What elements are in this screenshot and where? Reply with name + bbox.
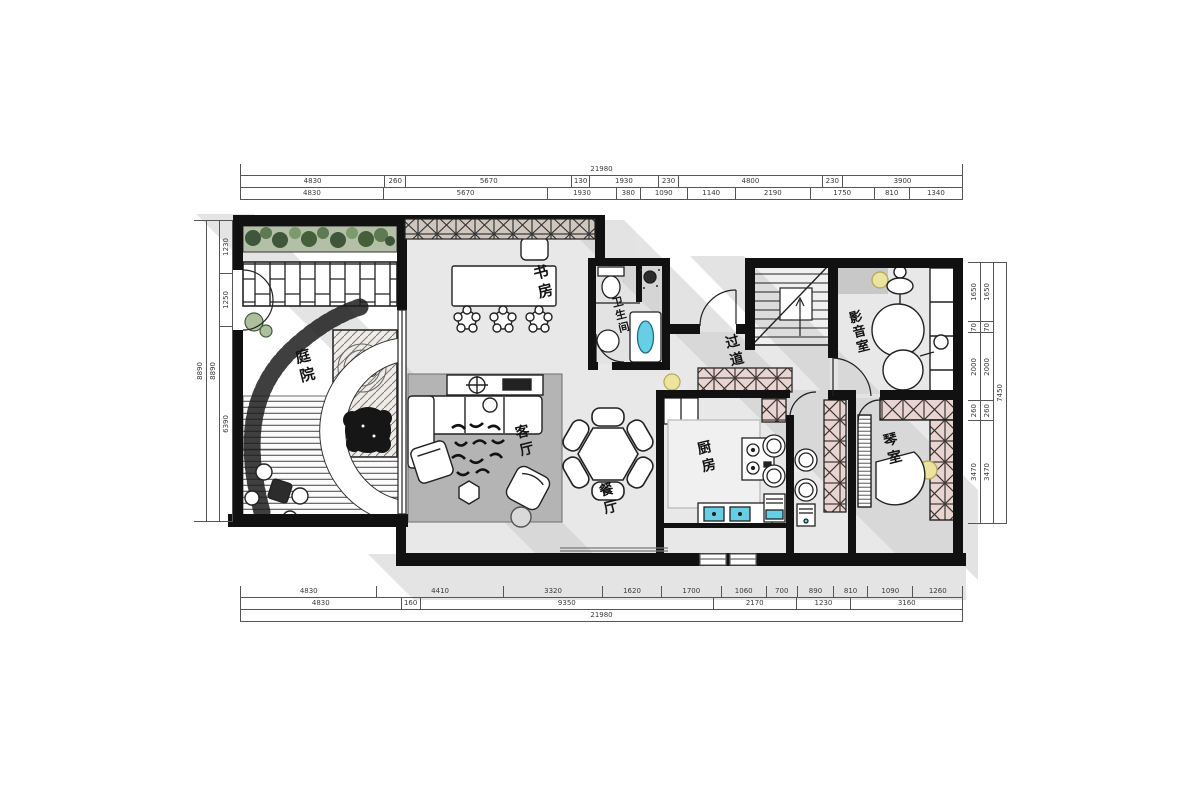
dim-col-left-segments: 123012506390 [220,220,233,522]
corridor-lamp [664,374,680,390]
dim-value: 810 [833,586,867,598]
dim-value: 130 [571,176,589,188]
dim-value: 1230 [220,220,232,273]
study-chair [521,238,548,260]
dim-value: 6390 [220,326,232,522]
dim-value: 1930 [589,176,658,188]
dim-col-left-total-inner: 8890 [207,220,220,522]
dim-value: 160 [401,598,420,610]
toilet [602,276,620,298]
pantry-cabinets [824,400,846,512]
upright-piano [858,415,871,507]
dim-row-top-2: 48305670193038010901140219017508101340 [240,188,963,200]
dim-value: 4830 [240,586,376,598]
dim-value: 1620 [602,586,660,598]
dim-value: 1750 [810,188,874,200]
dim-value: 2190 [735,188,810,200]
dryer [795,479,817,501]
dim-total-bottom: 21980 [240,610,962,622]
shower-head [644,271,656,283]
round-stool [511,507,531,527]
dim-value: 4410 [376,586,502,598]
bathtub [638,321,654,353]
dimensions-left: 8890 8890 123012506390 [194,220,233,522]
dim-col-left-total-outer: 8890 [194,220,207,522]
dim-value: 9350 [420,598,713,610]
dimensions-bottom: 4830441033201620170010607008908101090126… [240,586,962,622]
dim-value: 3320 [503,586,603,598]
dim-value: 1260 [912,586,962,598]
beanbag-2 [883,350,923,390]
dim-value: 3470 [981,420,993,524]
dimensions-right: 16507020002603470 16507020002603470 7450 [968,262,1007,524]
dim-value: 1230 [796,598,851,610]
beanbag-1 [872,304,924,356]
dim-value: 5670 [383,188,547,200]
flower-chairs [454,306,552,332]
dim-value: 230 [658,176,678,188]
dim-value: 1650 [981,262,993,321]
corridor-bench [698,368,792,392]
dim-value: 2000 [981,332,993,399]
dim-value: 2000 [968,332,980,399]
dim-value: 3470 [968,420,980,524]
dim-value: 1140 [687,188,735,200]
dim-value: 70 [968,321,980,333]
dim-value: 1250 [220,273,232,326]
study-top-window [405,219,595,239]
dim-value: 1700 [661,586,721,598]
dim-value: 1090 [640,188,687,200]
oven-2 [763,465,785,487]
dim-value: 4830 [240,598,401,610]
floorplan-page: 书房 卫生间 过道 影音室 庭院 客厅 餐厅 厨房 琴室 21980 48302… [0,0,1200,800]
media-lamp [872,272,888,288]
dim-value: 1650 [968,262,980,321]
dim-row-top-1: 48302605670130193023048002303900 [240,176,963,188]
dim-value: 700 [766,586,797,598]
dim-value: 8890 [194,220,206,522]
dim-value: 3900 [842,176,962,188]
tv [503,379,531,390]
dim-value: 4800 [678,176,821,188]
dim-value: 4830 [240,188,383,200]
dim-value: 260 [384,176,405,188]
dim-value: 1340 [909,188,962,200]
person-standing-body [887,278,913,294]
dim-total-top: 21980 [240,164,962,176]
person-sitting [934,335,948,349]
dim-value: 8890 [207,220,219,522]
dim-value: 260 [968,400,980,421]
dim-value: 7450 [994,262,1006,524]
dim-value: 3160 [850,598,962,610]
lattice-screen [243,262,397,306]
dim-value: 4830 [240,176,384,188]
dim-value: 260 [981,400,993,421]
dim-col-right-segments-1: 16507020002603470 [968,262,981,524]
dim-value: 380 [616,188,640,200]
dim-row-bottom-total: 21980 [240,610,963,622]
piano-cabinet-top [880,398,954,420]
dim-value: 1930 [547,188,615,200]
hex-side-table [459,481,479,504]
dim-value: 1060 [721,586,766,598]
washer [795,449,817,471]
dim-col-right-total: 7450 [994,262,1007,524]
dim-row-top-total: 21980 [240,164,963,176]
dim-col-right-segments-2: 16507020002603470 [981,262,994,524]
floor-plan-drawing [0,0,1200,800]
dim-value: 1090 [867,586,912,598]
dim-value: 890 [797,586,833,598]
dimensions-top: 21980 48302605670130193023048002303900 4… [240,164,962,200]
courtyard-tree [343,407,392,453]
dim-value: 70 [981,321,993,333]
dim-value: 230 [822,176,842,188]
oven-1 [763,435,785,457]
dim-row-bottom-2: 48301609350217012303160 [240,598,963,610]
dim-row-bottom-1: 4830441033201620170010607008908101090126… [240,586,963,598]
dim-value: 2170 [713,598,796,610]
dim-value: 810 [874,188,909,200]
living-room [408,374,562,527]
dim-value: 5670 [405,176,571,188]
cabinet-box [762,398,786,422]
